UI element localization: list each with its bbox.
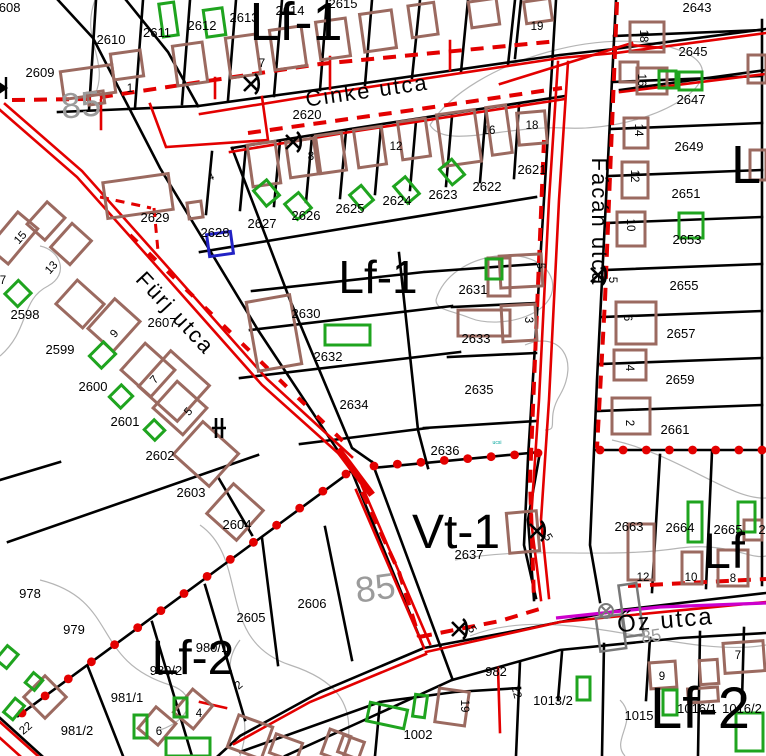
parcel-number-label: 2624 xyxy=(383,193,412,208)
building-outline-brown xyxy=(616,302,656,344)
parcel-number-label: 2631 xyxy=(459,282,488,297)
parcel-number-label: 981/2 xyxy=(61,723,94,738)
parcel-number-label: 2609 xyxy=(26,65,55,80)
parcel-number-label: 2659 xyxy=(666,372,695,387)
boundary-dot xyxy=(510,451,519,460)
house-number-label: 18 xyxy=(526,120,539,132)
parcel-number-label: 2645 xyxy=(679,44,708,59)
parcel-number-label: 2620 xyxy=(293,107,322,122)
house-number-label: 10 xyxy=(624,219,636,232)
parcel-number-label: 2629 xyxy=(141,210,170,225)
contour-elevation-label: 85 xyxy=(640,625,663,648)
house-number-label: 5 xyxy=(606,277,618,283)
parcel-number-label: 980/1 xyxy=(196,640,229,655)
house-number-label: 2 xyxy=(623,420,635,426)
house-number-label: 22 xyxy=(508,684,523,699)
cadastral-map-canvas[interactable]: Lf-1Lf-1Vt-1Lf-2Lf-2LLfCinke utcaFürj ut… xyxy=(0,0,766,756)
building-outline-brown xyxy=(187,201,203,219)
parcel-number-label: 2606 xyxy=(298,596,327,611)
parcel-number-label: 2664 xyxy=(666,520,695,535)
boundary-dot xyxy=(319,487,328,496)
parcel-number-label: 2607 xyxy=(148,315,177,330)
boundary-dot xyxy=(203,572,212,581)
parcel-number-label: 2613 xyxy=(230,10,259,25)
building-outline-green xyxy=(5,280,31,306)
parcel-number-label: 2601 xyxy=(111,414,140,429)
boundary-dot xyxy=(64,675,73,684)
building-outline-brown xyxy=(353,126,386,168)
boundary-dot xyxy=(417,458,426,467)
boundary-dot xyxy=(226,555,235,564)
tiny-annotation-label: ucsi xyxy=(493,440,502,446)
boundary-dot xyxy=(688,446,697,455)
boundary-dot xyxy=(619,446,628,455)
parcel-number-label: 2655 xyxy=(670,278,699,293)
zone-label: L xyxy=(731,135,761,195)
parcel-number-label: 2635 xyxy=(465,382,494,397)
boundary-dot xyxy=(272,521,281,530)
boundary-dot xyxy=(487,452,496,461)
parcel-number-label: 979 xyxy=(63,622,85,637)
house-number-label: 16 xyxy=(483,125,496,137)
house-number-label: 8 xyxy=(730,573,736,585)
map-labels-layer: Lf-1Lf-1Vt-1Lf-2Lf-2LLfCinke utcaFürj ut… xyxy=(0,0,766,742)
parcel-number-label: 2657 xyxy=(667,326,696,341)
house-number-label: 19 xyxy=(458,700,470,713)
house-number-label: 7 xyxy=(259,58,265,70)
parcel-number-label: 2647 xyxy=(677,92,706,107)
building-outline-brown xyxy=(172,42,207,86)
house-number-label: 12 xyxy=(637,572,650,584)
boundary-dot xyxy=(665,446,674,455)
boundary-dot xyxy=(87,657,96,666)
boundary-dot xyxy=(295,504,304,513)
boundary-dot xyxy=(758,446,766,455)
contour-elevation-label: 85 xyxy=(59,82,102,126)
valve-icon xyxy=(0,77,6,99)
parcel-number-label: 2623 xyxy=(429,187,458,202)
house-number-label: 4 xyxy=(206,170,217,184)
house-number-label: 4 xyxy=(623,365,635,372)
building-outline-brown xyxy=(408,2,438,37)
parcel-number-label: 2661 xyxy=(661,422,690,437)
boundary-dot xyxy=(463,454,472,463)
boundary-dot xyxy=(711,446,720,455)
house-number-label: 1 xyxy=(127,83,133,95)
house-number-label: 7 xyxy=(148,374,161,387)
building-outline-brown xyxy=(360,10,397,52)
house-number-label: 6 xyxy=(156,726,162,738)
contour-elevation-label: 85 xyxy=(353,565,398,611)
parcel-number-label: 2636 xyxy=(431,443,460,458)
boundary-dot xyxy=(180,589,189,598)
parcel-number-label: 2626 xyxy=(292,208,321,223)
parcel-number-label: 2603 xyxy=(177,485,206,500)
parcel-number-label: 2643 xyxy=(683,0,712,15)
parcel-number-label: 2663 xyxy=(615,519,644,534)
parcel-number-label: 2633 xyxy=(462,331,491,346)
parcel-number-label: 2598 xyxy=(11,307,40,322)
parcel-number-label: 2602 xyxy=(146,448,175,463)
parcel-number-label: 1015 xyxy=(625,708,654,723)
parcel-number-label: 1016/1 xyxy=(677,701,717,716)
parcel-number-label: 2653 xyxy=(673,232,702,247)
house-number-label: 8 xyxy=(308,151,314,163)
boundary-dot xyxy=(249,538,258,547)
parcel-number-label: 2622 xyxy=(473,179,502,194)
parcel-number-label: 2600 xyxy=(79,379,108,394)
parcel-number-label: 2621 xyxy=(518,162,547,177)
parcel-number-label: 2634 xyxy=(340,397,369,412)
parcel-number-label: 981/1 xyxy=(111,690,144,705)
boundary-dot xyxy=(596,446,605,455)
street-name-label: Fácán utca xyxy=(587,158,612,287)
building-outline-brown xyxy=(468,0,499,28)
parcel-number-label: 2632 xyxy=(314,349,343,364)
house-number-label: 9 xyxy=(659,671,665,683)
boundary-dot xyxy=(342,470,351,479)
house-number-label: 16 xyxy=(635,74,647,87)
parcel-number-label: 2599 xyxy=(46,342,75,357)
house-number-label: 10 xyxy=(685,572,698,584)
parcel-number-label: 2612 xyxy=(188,18,217,33)
building-outline-brown xyxy=(51,223,92,264)
house-number-label: 18 xyxy=(637,30,649,43)
parcel-number-label: 2627 xyxy=(248,216,277,231)
building-outline-green xyxy=(325,325,370,345)
parcel-number-label: 2637 xyxy=(455,547,484,562)
house-number-label: 2 xyxy=(233,679,246,692)
parcel-number-label: 2614 xyxy=(276,3,305,18)
parcel-number-label: 1013/2 xyxy=(533,693,573,708)
parcel-number-label: 2665 xyxy=(714,522,743,537)
parcel-number-label: 2610 xyxy=(97,32,126,47)
parcel-number-label: 2611 xyxy=(143,25,171,40)
house-number-label: 5 xyxy=(534,263,546,269)
building-outline-green xyxy=(0,646,18,669)
building-outline-green xyxy=(144,420,165,441)
parcel-number-label: 980/2 xyxy=(150,663,183,678)
house-number-label: 19 xyxy=(531,21,544,33)
map-viewport[interactable]: Lf-1Lf-1Vt-1Lf-2Lf-2LLfCinke utcaFürj ut… xyxy=(0,0,766,756)
boundary-dot xyxy=(370,462,379,471)
parcel-number-label: 2615 xyxy=(329,0,358,11)
boundary-dot xyxy=(393,460,402,469)
parcel-number-label: 978 xyxy=(19,586,41,601)
building-outline-green xyxy=(89,342,115,368)
building-outline-brown xyxy=(269,734,302,756)
house-number-label: 6 xyxy=(621,315,633,321)
parcel-number-label: 2604 xyxy=(223,517,252,532)
house-number-label: 4 xyxy=(196,708,203,720)
zone-label: Lf-1 xyxy=(338,251,417,303)
building-outline-green xyxy=(577,677,590,700)
parcel-number-label: 2608 xyxy=(0,0,20,15)
boundary-dot xyxy=(642,446,651,455)
house-number-label: 14 xyxy=(632,124,644,137)
boundary-dot xyxy=(133,623,142,632)
house-number-label: 9 xyxy=(108,328,121,341)
building-outline-brown xyxy=(121,343,175,397)
boundary-dot xyxy=(41,692,50,701)
house-number-label: 12 xyxy=(390,141,403,153)
parcel-number-label: 2 xyxy=(758,522,765,537)
house-number-label: 12 xyxy=(628,170,640,183)
parcel-number-label: 2628 xyxy=(201,225,230,240)
house-number-label: 3 xyxy=(522,317,534,323)
parcel-number-label: 2651 xyxy=(672,186,701,201)
building-outline-brown xyxy=(612,398,650,434)
building-outline-brown xyxy=(338,735,365,756)
house-number-label: 7 xyxy=(0,275,6,287)
boundary-dot xyxy=(110,640,119,649)
parcel-number-label: 2649 xyxy=(675,139,704,154)
boundary-dot xyxy=(157,606,166,615)
house-number-label: 13 xyxy=(43,259,60,277)
building-outline-brown xyxy=(88,299,140,351)
parcel-number-label: 1016/2 xyxy=(722,701,762,716)
boundary-dot xyxy=(534,449,543,458)
parcel-number-label: 982 xyxy=(485,664,507,679)
parcel-number-label: 2630 xyxy=(292,306,321,321)
boundary-dot xyxy=(735,446,744,455)
building-outline-brown xyxy=(173,422,238,487)
parcel-number-label: 1002 xyxy=(404,727,433,742)
house-number-label: 15 xyxy=(12,229,29,247)
parcel-number-label: 2625 xyxy=(336,201,365,216)
parcel-number-label: 2605 xyxy=(237,610,266,625)
house-number-label: 7 xyxy=(735,650,741,662)
building-outline-green xyxy=(109,385,132,408)
